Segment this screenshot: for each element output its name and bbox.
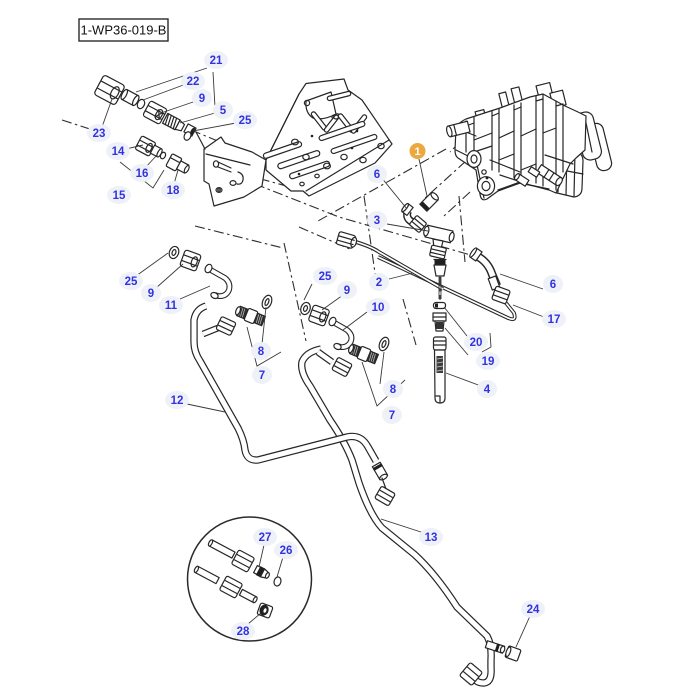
svg-text:26: 26 xyxy=(280,545,293,557)
svg-text:24: 24 xyxy=(527,604,540,616)
svg-text:6: 6 xyxy=(550,279,556,291)
svg-text:9: 9 xyxy=(199,93,205,105)
svg-text:3: 3 xyxy=(374,215,380,227)
svg-text:25: 25 xyxy=(239,115,252,127)
svg-text:21: 21 xyxy=(210,55,223,67)
svg-text:4: 4 xyxy=(484,384,491,396)
svg-text:9: 9 xyxy=(148,288,154,300)
svg-text:7: 7 xyxy=(259,370,265,382)
svg-text:22: 22 xyxy=(187,76,200,88)
svg-text:28: 28 xyxy=(237,626,250,638)
svg-text:5: 5 xyxy=(220,105,227,117)
svg-text:9: 9 xyxy=(344,285,350,297)
svg-text:13: 13 xyxy=(425,532,438,544)
svg-text:17: 17 xyxy=(548,314,561,326)
svg-text:27: 27 xyxy=(259,532,272,544)
svg-text:6: 6 xyxy=(374,169,380,181)
svg-text:1: 1 xyxy=(414,146,420,158)
svg-text:25: 25 xyxy=(319,271,332,283)
svg-text:8: 8 xyxy=(390,384,397,396)
svg-text:16: 16 xyxy=(136,168,149,180)
svg-text:15: 15 xyxy=(113,190,126,202)
svg-text:14: 14 xyxy=(112,146,125,158)
svg-text:18: 18 xyxy=(167,185,180,197)
svg-text:7: 7 xyxy=(389,410,395,422)
svg-text:8: 8 xyxy=(258,346,265,358)
svg-text:2: 2 xyxy=(376,277,382,289)
svg-text:12: 12 xyxy=(171,395,184,407)
svg-text:10: 10 xyxy=(372,302,385,314)
svg-text:11: 11 xyxy=(165,300,178,312)
svg-text:25: 25 xyxy=(125,276,138,288)
svg-text:1-WP36-019-B: 1-WP36-019-B xyxy=(81,23,167,38)
svg-text:19: 19 xyxy=(482,356,495,368)
svg-text:20: 20 xyxy=(470,337,483,349)
svg-text:23: 23 xyxy=(93,128,106,140)
